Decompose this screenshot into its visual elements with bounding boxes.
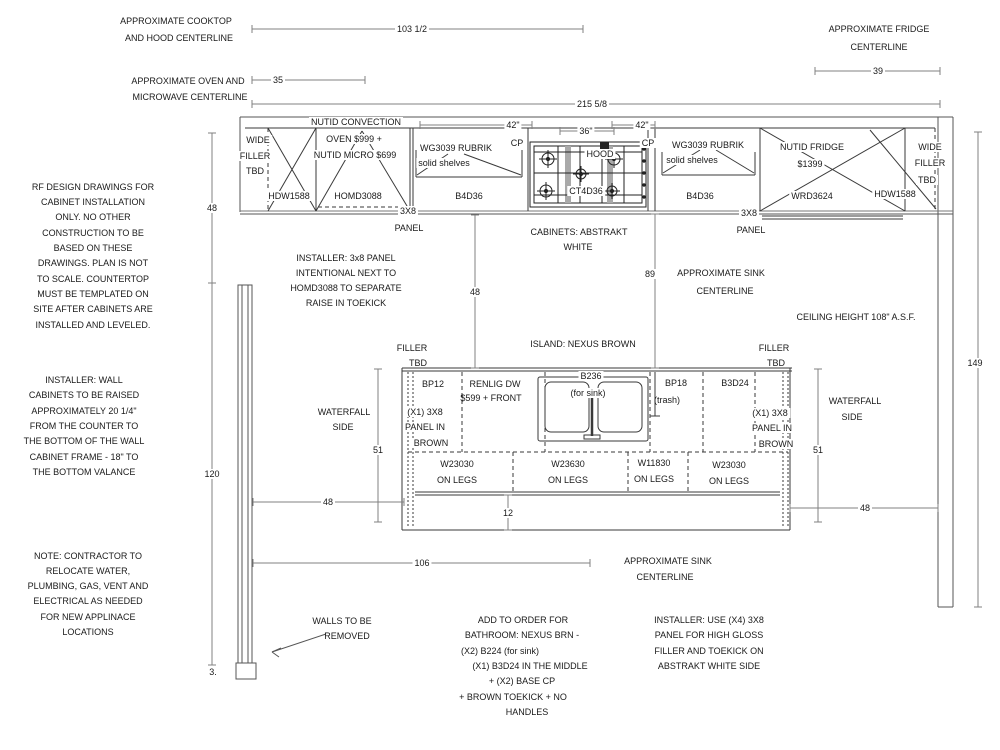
contractor-note-2: RELOCATE WATER, [46,566,130,576]
dim-hood-width-label: 36" [577,126,594,136]
renlig-label-1: RENLIG DW [469,379,520,389]
rf-design-note-1: RF DESIGN DRAWINGS FOR [32,182,154,192]
cabinets-finish-label-2: WHITE [564,242,593,252]
rf-design-note-2: CABINET INSTALLATION [41,197,145,207]
dim-sink-centerline-h-label: 106 [412,558,431,568]
installer-wall-note-7: THE BOTTOM VALANCE [33,467,136,477]
w23630-legs: ON LEGS [548,475,588,485]
dim-right-wall-cab-height-label: 42" [633,120,650,130]
cp-right-label: CP [640,138,657,148]
nutid-convection-label-3: NUTID MICRO $699 [312,150,399,160]
walls-removed-note-1: WALLS TO BE [312,616,371,626]
w23030-1-legs: ON LEGS [437,475,477,485]
wide-filler-left-1: WIDE [244,135,272,145]
panel-brown-right-1: (X1) 3X8 [750,408,790,418]
installer-panel-note-1: INSTALLER: 3x8 PANEL [296,253,395,263]
dim-left-aisle-label: 48 [321,497,335,507]
panel-brown-right-3: BROWN [757,439,796,449]
w23030-2-label: W23030 [712,460,746,470]
filler-island-right-2: TBD [767,358,785,368]
panel-right-label: PANEL [737,225,766,235]
w23030-2-legs: ON LEGS [709,476,749,486]
waterfall-left-1: WATERFALL [318,407,371,417]
contractor-note-3: PLUMBING, GAS, VENT AND [28,581,149,591]
wg3039-left-label-1: WG3039 RUBRIK [418,143,494,153]
installer-use-note-2: PANEL FOR HIGH GLOSS [655,630,764,640]
panel-left-label: PANEL [395,223,424,233]
w11830-label: W11830 [638,458,671,468]
walls-removed-note-2: REMOVED [324,631,370,641]
add-order-note-3: (X2) B224 (for sink) [461,646,539,656]
dim-island-toekick-label: 12 [501,508,515,518]
waterfall-right-1: WATERFALL [829,396,882,406]
dim-sink-centerline-v-label: 89 [643,269,657,279]
waterfall-left-2: SIDE [332,422,353,432]
rf-design-note-5: BASED ON THESE [54,243,133,253]
wide-filler-right-2: FILLER [913,158,948,168]
rf-design-note-6: DRAWINGS. PLAN IS NOT [38,258,148,268]
nutid-fridge-label-2: $1399 [795,159,824,169]
hdw1588-left-label: HDW1588 [266,191,312,201]
dim-island-left-height-label: 51 [371,445,385,455]
sink-centerline-note-b2: CENTERLINE [636,572,693,582]
wide-filler-left-3: TBD [244,166,266,176]
panel-brown-left-3: BROWN [412,438,451,448]
rf-design-note-9: SITE AFTER CABINETS ARE [33,304,153,314]
ct4d36-label: CT4D36 [567,186,605,196]
add-order-note-2: BATHROOM: NEXUS BRN - [465,630,579,640]
fridge-centerline-note-1: APPROXIMATE FRIDGE [829,24,930,34]
b3d24-label: B3D24 [721,378,749,388]
b236-label: B236 [578,371,603,381]
b4d36-right-label: B4D36 [686,191,714,201]
ceiling-height-note: CEILING HEIGHT 108" A.S.F. [796,312,915,322]
waterfall-right-2: SIDE [841,412,862,422]
wg3039-right-label-1: WG3039 RUBRIK [670,140,746,150]
installer-wall-note-4: FROM THE COUNTER TO [30,421,139,431]
w23630-label: W23630 [551,459,585,469]
cabinet-installation-drawing: APPROXIMATE COOKTOPAND HOOD CENTERLINEAP… [0,0,1000,750]
dim-oven-micro-centerline-label: 35 [271,75,285,85]
dim-left-wall-cab-height-label: 42" [504,120,521,130]
installer-use-note-1: INSTALLER: USE (X4) 3X8 [654,615,764,625]
rf-design-note-10: INSTALLED AND LEVELED. [36,320,151,330]
nutid-convection-label-2: OVEN $999 + [324,134,384,144]
sink-centerline-note-1: APPROXIMATE SINK [677,268,765,278]
rf-design-note-8: MUST BE TEMPLATED ON [37,289,149,299]
installer-use-note-4: ABSTRAKT WHITE SIDE [658,661,760,671]
contractor-note-4: ELECTRICAL AS NEEDED [33,596,142,606]
dim-right-aisle-label: 48 [858,503,872,513]
panel-3x8-right-label: 3X8 [739,208,759,218]
hdw1588-right-label: HDW1588 [872,189,918,199]
installer-wall-note-1: INSTALLER: WALL [45,375,123,385]
cp-left-label: CP [509,138,526,148]
renlig-label-2: $599 + FRONT [460,393,521,403]
sink-centerline-note-b1: APPROXIMATE SINK [624,556,712,566]
installer-wall-note-6: CABINET FRAME - 18" TO [30,452,139,462]
oven-centerline-note-2: MICROWAVE CENTERLINE [132,92,247,102]
add-order-note-4: (X1) B3D24 IN THE MIDDLE [472,661,587,671]
add-order-note-7: HANDLES [506,707,549,717]
bp18-trash-label: (trash) [654,395,680,405]
nutid-convection-label-1: NUTID CONVECTION [309,117,403,127]
wg3039-right-label-2: solid shelves [664,155,720,165]
fridge-centerline-note-2: CENTERLINE [850,42,907,52]
nutid-fridge-label-1: NUTID FRIDGE [778,142,846,152]
wide-filler-left-2: FILLER [238,151,273,161]
sink-centerline-note-2: CENTERLINE [696,286,753,296]
dim-fridge-centerline-label: 39 [871,66,885,76]
w11830-legs: ON LEGS [634,474,674,484]
contractor-note-1: NOTE: CONTRACTOR TO [34,551,142,561]
homd3088-label: HOMD3088 [332,191,384,201]
island-finish-label: ISLAND: NEXUS BROWN [530,339,636,349]
wall-foot-dim: 3. [209,667,217,677]
b236-sink-label: (for sink) [568,388,607,398]
dim-overall-width-label: 215 5/8 [575,99,609,109]
installer-wall-note-3: APPROXIMATELY 20 1/4" [31,406,136,416]
cooktop-centerline-note-2: AND HOOD CENTERLINE [125,33,233,43]
rf-design-note-4: CONSTRUCTION TO BE [42,228,144,238]
w23030-1-label: W23030 [440,459,474,469]
wrd3624-label: WRD3624 [789,191,835,201]
cabinets-finish-label-1: CABINETS: ABSTRAKT [530,227,627,237]
filler-island-left-2: TBD [409,358,427,368]
wide-filler-right-1: WIDE [916,142,944,152]
dim-cooktop-hood-centerline-label: 103 1/2 [395,24,429,34]
dim-lower-wall-height-label: 120 [202,469,221,479]
panel-brown-left-1: (X1) 3X8 [405,407,445,417]
contractor-note-6: LOCATIONS [62,627,113,637]
rf-design-note-7: TO SCALE. COUNTERTOP [37,274,149,284]
wide-filler-right-3: TBD [916,175,938,185]
installer-wall-note-5: THE BOTTOM OF THE WALL [24,436,145,446]
installer-use-note-3: FILLER AND TOEKICK ON [654,646,763,656]
wg3039-left-label-2: solid shelves [416,158,472,168]
add-order-note-1: ADD TO ORDER FOR [478,615,568,625]
oven-centerline-note-1: APPROXIMATE OVEN AND [131,76,244,86]
rf-design-note-3: ONLY. NO OTHER [55,212,130,222]
dim-upper-wall-height-label: 48 [205,203,219,213]
b4d36-left-label: B4D36 [455,191,483,201]
dim-island-right-height-label: 51 [811,445,825,455]
filler-island-left-1: FILLER [397,343,428,353]
installer-wall-note-2: CABINETS TO BE RAISED [29,390,139,400]
hood-label: HOOD [585,149,616,159]
installer-panel-note-3: HOMD3088 TO SEPARATE [290,283,401,293]
dim-counter-island-gap-label: 48 [468,287,482,297]
annotation-layer: APPROXIMATE COOKTOPAND HOOD CENTERLINEAP… [0,0,1000,750]
dim-right-wall-height-label: 149 [965,358,984,368]
bp12-label: BP12 [422,379,444,389]
cooktop-centerline-note-1: APPROXIMATE COOKTOP [120,16,232,26]
add-order-note-6: + BROWN TOEKICK + NO [459,692,567,702]
installer-panel-note-4: RAISE IN TOEKICK [306,298,386,308]
panel-brown-right-2: PANEL IN [750,423,794,433]
contractor-note-5: FOR NEW APPLINACE [40,612,135,622]
panel-brown-left-2: PANEL IN [403,422,447,432]
add-order-note-5: + (X2) BASE CP [489,676,555,686]
panel-3x8-left-label: 3X8 [398,206,418,216]
installer-panel-note-2: INTENTIONAL NEXT TO [296,268,396,278]
bp18-label: BP18 [665,378,687,388]
filler-island-right-1: FILLER [759,343,790,353]
